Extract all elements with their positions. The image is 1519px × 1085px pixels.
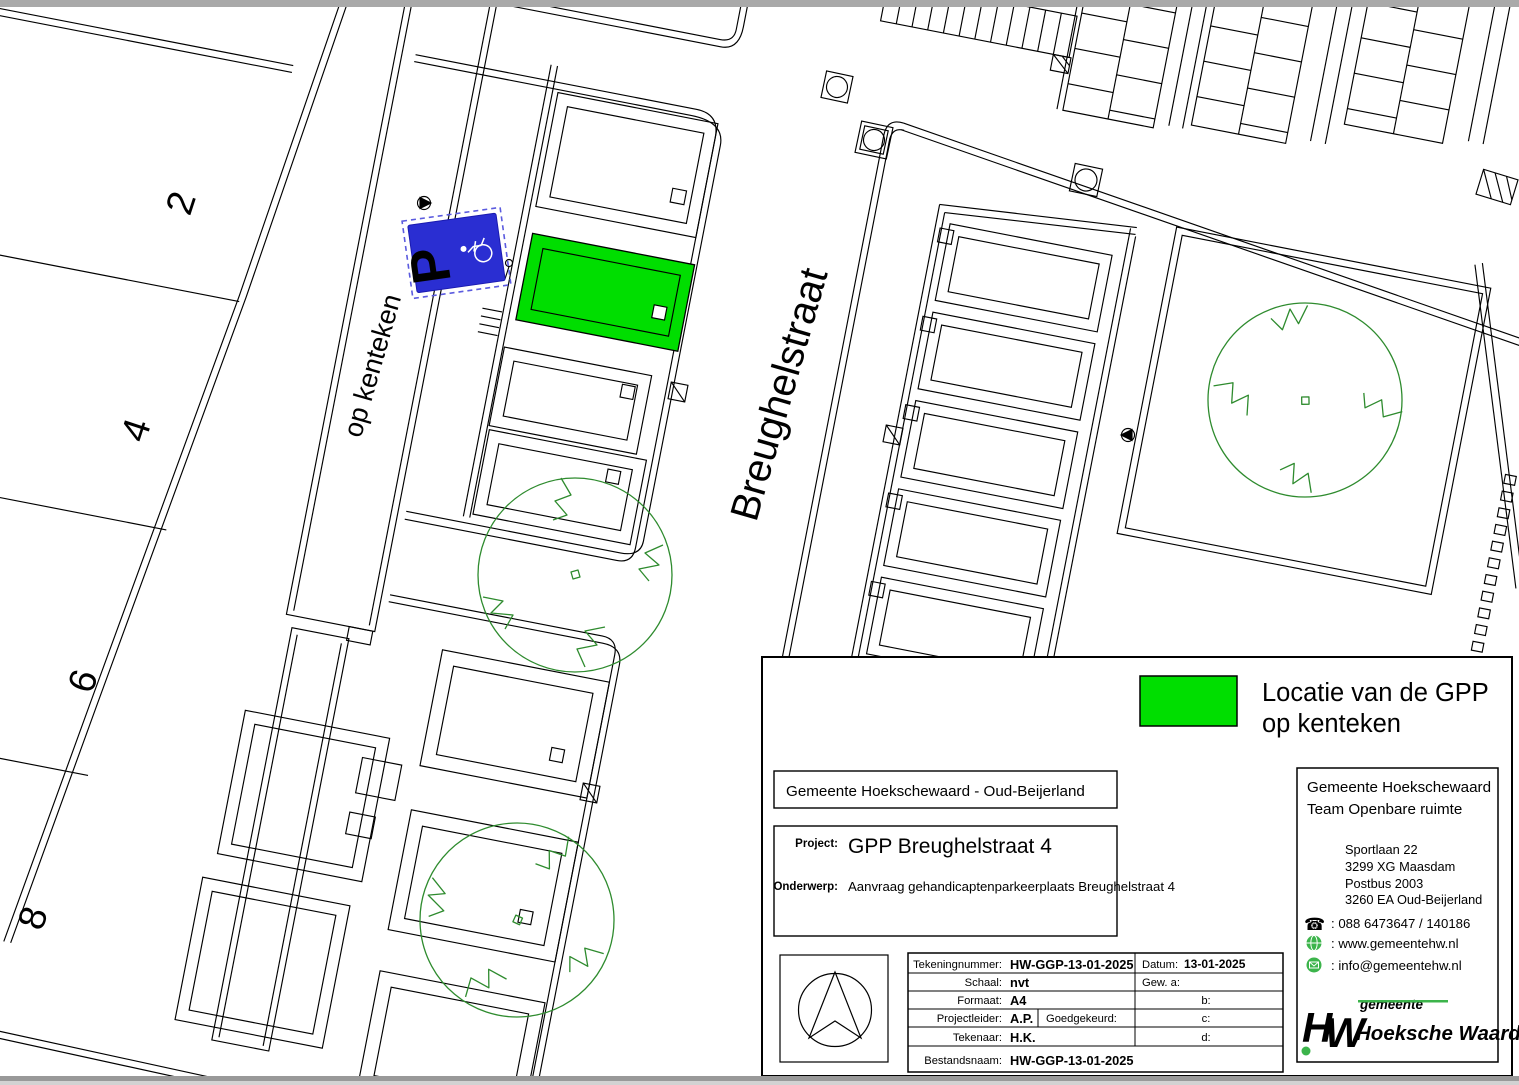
contact-address-line: Postbus 2003 bbox=[1345, 876, 1423, 891]
table-label: d: bbox=[1201, 1032, 1210, 1044]
gpp-parking-spot bbox=[516, 233, 695, 351]
table-label: Datum: bbox=[1142, 959, 1178, 971]
house-number: 2 bbox=[158, 187, 204, 220]
table-value: HW-GGP-13-01-2025 bbox=[1010, 957, 1134, 972]
legend-text-line2: op kenteken bbox=[1262, 710, 1401, 738]
contact-org-line1: Gemeente Hoekschewaard bbox=[1307, 779, 1491, 796]
table-label: Schaal: bbox=[965, 977, 1002, 989]
site-plan-canvas: P Breughelstraat op kenteken 2 4 6 8 Loc… bbox=[0, 0, 1519, 1085]
house-number: 4 bbox=[113, 414, 159, 447]
web-globe-icon bbox=[1307, 936, 1322, 951]
contact-address-line: 3299 XG Maasdam bbox=[1345, 859, 1455, 874]
phone-icon: ☎ bbox=[1304, 915, 1325, 934]
manhole-icon bbox=[821, 71, 853, 103]
buildings-roadside bbox=[358, 650, 610, 1085]
garage-strip-3 bbox=[1344, 0, 1490, 143]
organization-title: Gemeente Hoekschewaard - Oud-Beijerland bbox=[786, 783, 1085, 800]
contact-address-line: 3260 EA Oud-Beijerland bbox=[1345, 892, 1482, 907]
table-value: A4 bbox=[1010, 993, 1027, 1008]
table-label: Goedgekeurd: bbox=[1046, 1013, 1117, 1025]
table-label: Bestandsnaam: bbox=[924, 1055, 1002, 1067]
disabled-parking-sign: P bbox=[394, 207, 511, 299]
marker-square-icon bbox=[668, 382, 688, 402]
contact-org-line2: Team Openbare ruimte bbox=[1307, 801, 1462, 818]
logo-name-text: Hoeksche Waard bbox=[1356, 1022, 1519, 1045]
manhole-icon bbox=[1069, 163, 1102, 196]
table-label: c: bbox=[1202, 1013, 1211, 1025]
table-label: Tekeningnummer: bbox=[913, 959, 1002, 971]
tree-icon bbox=[380, 783, 653, 1056]
page-edge-bottom bbox=[0, 1076, 1519, 1081]
subject-value: Aanvraag gehandicaptenparkeerplaats Breu… bbox=[848, 879, 1175, 894]
house-number: 8 bbox=[10, 902, 56, 935]
table-value: H.K. bbox=[1010, 1030, 1036, 1045]
contact-web: : www.gemeentehw.nl bbox=[1331, 936, 1459, 951]
contact-address-line: Sportlaan 22 bbox=[1345, 842, 1418, 857]
page-edge-top bbox=[0, 0, 1519, 7]
gate-hatch-icon bbox=[1476, 169, 1518, 204]
table-value: nvt bbox=[1010, 975, 1030, 990]
project-value: GPP Breughelstraat 4 bbox=[848, 835, 1052, 858]
contact-email: : info@gemeentehw.nl bbox=[1331, 958, 1462, 973]
table-label: b: bbox=[1201, 995, 1210, 1007]
sidewalk-strip bbox=[204, 0, 502, 1056]
dashed-markers bbox=[1471, 474, 1516, 652]
tree-icon bbox=[1186, 281, 1424, 519]
contact-phone: : 088 6473647 / 140186 bbox=[1331, 916, 1470, 931]
page-edge-bottom-light bbox=[0, 1081, 1519, 1085]
project-label: Project: bbox=[795, 838, 838, 850]
street-name-label: Breughelstraat bbox=[723, 263, 837, 525]
kenteken-label: op kenteken bbox=[338, 291, 407, 441]
table-label: Formaat: bbox=[957, 995, 1002, 1007]
drawing-page: P Breughelstraat op kenteken 2 4 6 8 Loc… bbox=[0, 0, 1519, 1085]
lamp-post-icon bbox=[418, 197, 432, 210]
buildings-west bbox=[175, 708, 406, 1052]
lamp-post-icon bbox=[1121, 429, 1135, 442]
manhole-icon bbox=[855, 121, 893, 159]
table-label: Gew. a: bbox=[1142, 977, 1180, 989]
legend-text-line1: Locatie van de GPP bbox=[1262, 679, 1489, 707]
table-label: Tekenaar: bbox=[953, 1032, 1002, 1044]
table-value: A.P. bbox=[1010, 1011, 1033, 1026]
email-icon bbox=[1307, 958, 1322, 973]
garage-row-east bbox=[847, 190, 1137, 719]
title-block: Locatie van de GPP op kenteken Gemeente … bbox=[762, 657, 1519, 1076]
table-value: 13-01-2025 bbox=[1184, 957, 1246, 971]
subject-label: Onderwerp: bbox=[773, 881, 838, 893]
tree-parcel bbox=[1117, 205, 1519, 612]
marker-square-icon bbox=[580, 783, 600, 803]
table-label: Projectleider: bbox=[937, 1013, 1002, 1025]
table-value: HW-GGP-13-01-2025 bbox=[1010, 1053, 1134, 1068]
house-number: 6 bbox=[60, 665, 106, 698]
logo-small-text: gemeente bbox=[1359, 997, 1424, 1012]
legend-swatch bbox=[1140, 676, 1237, 726]
parking-sign-letter: P bbox=[398, 244, 462, 288]
